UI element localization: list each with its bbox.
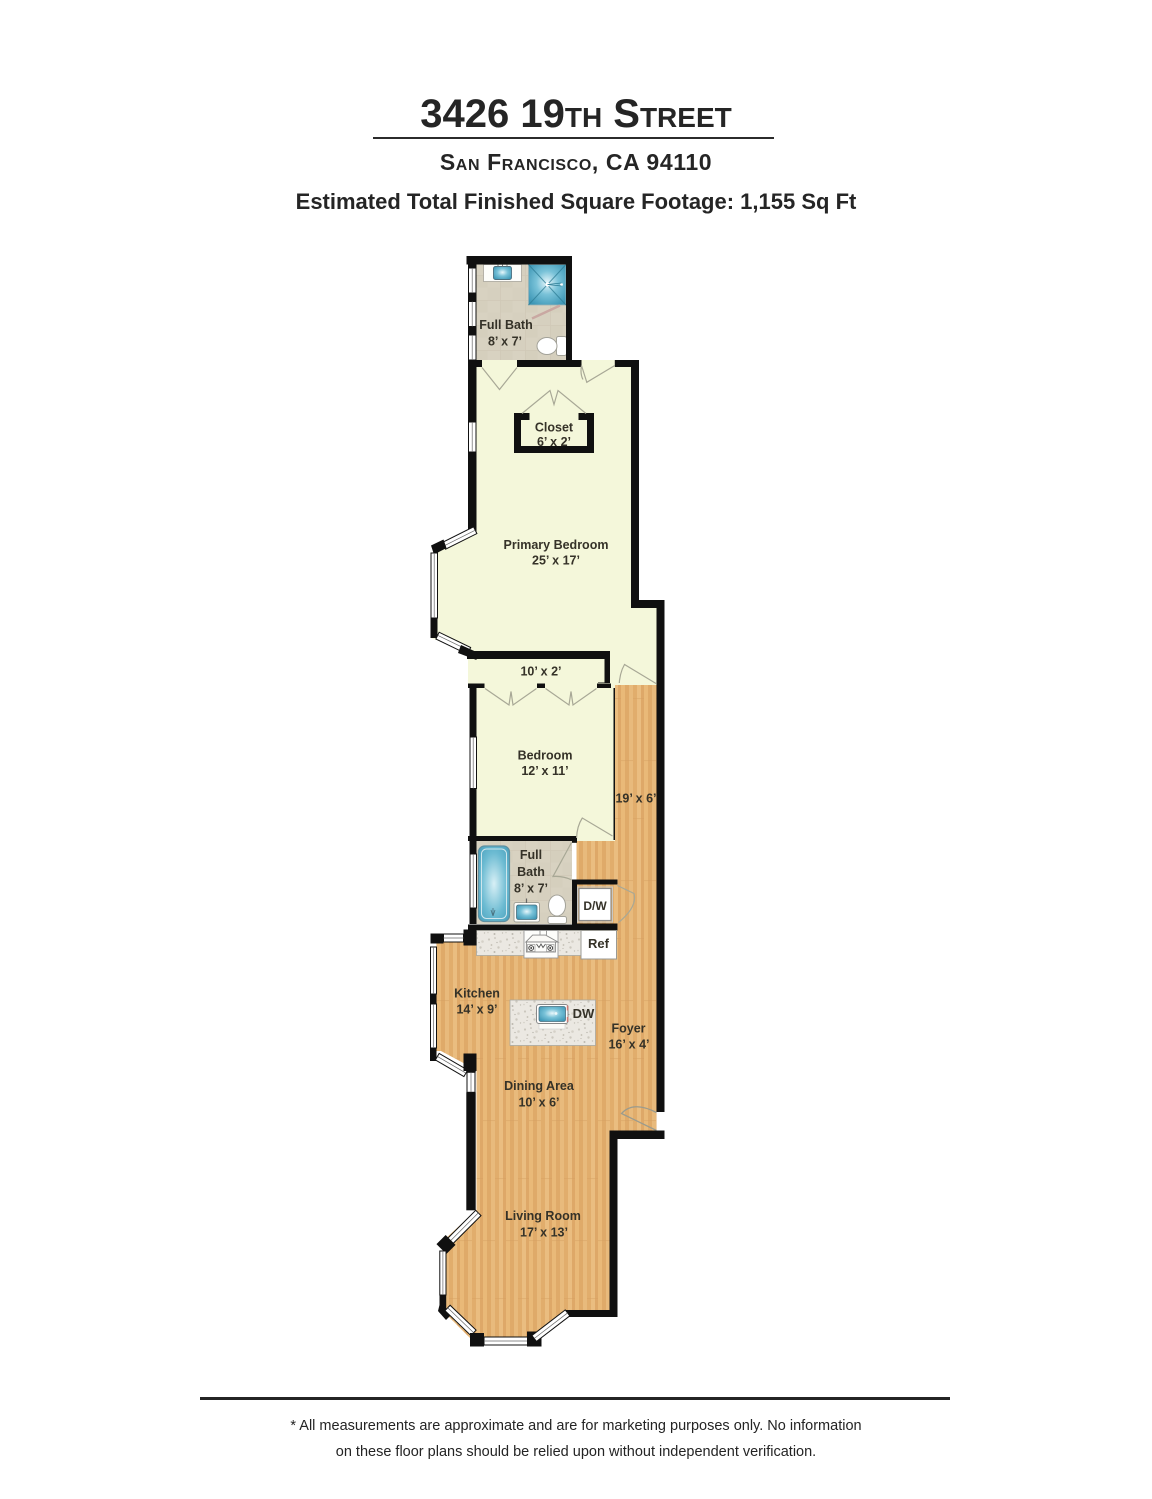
svg-text:10’ x 2’: 10’ x 2’ — [520, 665, 561, 679]
svg-text:12’ x 11’: 12’ x 11’ — [521, 764, 568, 778]
svg-text:25’ x 17’: 25’ x 17’ — [532, 554, 580, 568]
svg-text:14’ x 9’: 14’ x 9’ — [456, 1003, 497, 1017]
svg-text:DW: DW — [573, 1006, 595, 1021]
svg-text:Foyer: Foyer — [611, 1022, 645, 1036]
svg-text:Living Room: Living Room — [505, 1209, 581, 1223]
svg-text:6’ x 2’: 6’ x 2’ — [537, 435, 571, 449]
svg-text:D/W: D/W — [583, 899, 607, 913]
svg-text:8’ x 7’: 8’ x 7’ — [514, 882, 548, 896]
svg-text:Bedroom: Bedroom — [518, 749, 573, 763]
svg-text:19’ x 6’: 19’ x 6’ — [615, 792, 656, 806]
svg-text:10’ x 6’: 10’ x 6’ — [518, 1096, 559, 1110]
svg-text:17’ x 13’: 17’ x 13’ — [520, 1226, 568, 1240]
svg-text:Full: Full — [520, 848, 542, 862]
svg-text:Kitchen: Kitchen — [454, 987, 500, 1001]
svg-text:Full Bath: Full Bath — [479, 318, 532, 332]
svg-text:Dining Area: Dining Area — [504, 1079, 575, 1093]
svg-text:Bath: Bath — [517, 865, 545, 879]
svg-text:8’ x 7’: 8’ x 7’ — [488, 335, 522, 349]
svg-text:16’ x 4’: 16’ x 4’ — [608, 1038, 649, 1052]
svg-text:Ref: Ref — [588, 936, 610, 951]
svg-text:Primary Bedroom: Primary Bedroom — [504, 538, 609, 552]
svg-text:Closet: Closet — [535, 421, 574, 435]
